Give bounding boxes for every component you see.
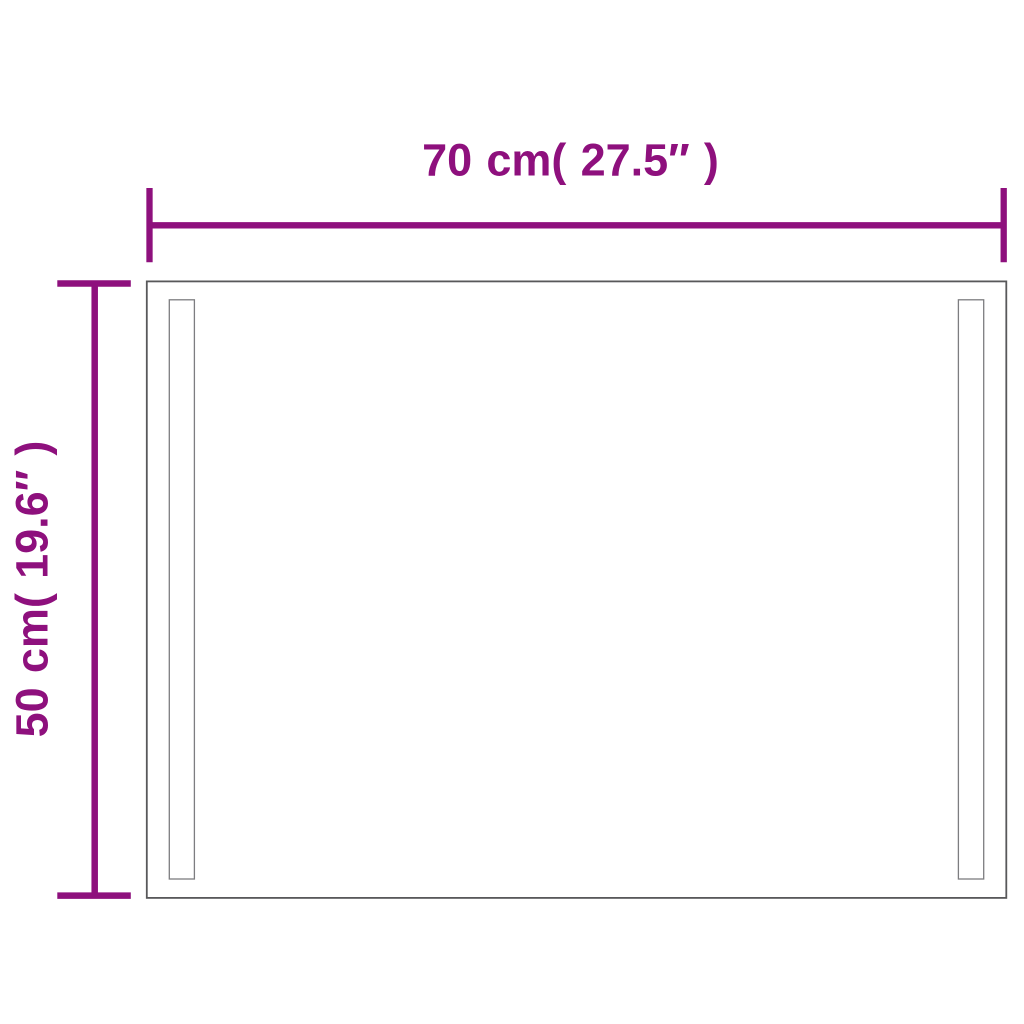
svg-text:70 cm( 27.5″ ): 70 cm( 27.5″ ) <box>422 135 719 186</box>
svg-text:50 cm( 19.6″ ): 50 cm( 19.6″ ) <box>7 441 58 738</box>
